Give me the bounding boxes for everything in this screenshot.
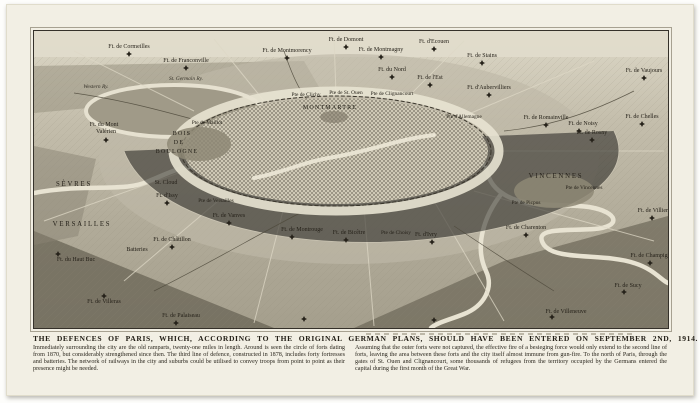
map-label: Ft. du Haut Buc <box>57 257 96 263</box>
map-label: Pte de Vincennes <box>565 185 602 191</box>
map-label: Valérien <box>96 129 116 135</box>
map-label: Ft. de Sucy <box>614 283 641 289</box>
map-label: Ft. de l'Est <box>417 75 443 81</box>
map-label: Batteries <box>126 247 148 253</box>
map-label: DE <box>174 140 184 146</box>
map-label: Pte de Clichy <box>291 92 320 98</box>
map-label: Ft. de Palaiseau <box>162 313 200 319</box>
map-label: Pte d'Allemagne <box>446 114 482 120</box>
map-label: Ft. d'Ivry <box>415 232 437 238</box>
map-label: Ft. d'Ecouen <box>419 39 449 45</box>
caption-left-column: Immediately surrounding the city are the… <box>33 345 345 373</box>
map-label: Ft. de Franconville <box>163 58 209 64</box>
map-label: Ft. de Cormeilles <box>108 44 150 50</box>
map-label: Pte de St. Ouen <box>329 90 363 96</box>
map-label: Ft. du Mont <box>90 122 119 128</box>
map-label: Pte de Picpus <box>511 200 540 206</box>
map-label: MONTMARTRE <box>303 105 357 111</box>
map-label: Pte de Maillot <box>192 120 223 126</box>
map-frame: Ft. de CormeillesFt. de FranconvilleFt. … <box>33 30 669 329</box>
map-label: Ft. de Villiers <box>638 208 668 214</box>
map-label: Ft. d'Issy <box>156 193 178 199</box>
map-label: Ft. de Villeneuve <box>545 309 586 315</box>
map-label: Ft. de Charenton <box>506 225 546 231</box>
map-label: Ft. de Champigny <box>630 253 668 259</box>
map-label: Ft. de Montmagny <box>359 47 404 53</box>
caption-title: THE DEFENCES OF PARIS, WHICH, ACCORDING … <box>33 334 667 343</box>
map-label: BOIS <box>173 131 191 137</box>
map-label: VINCENNES <box>529 173 584 180</box>
map-label: Ft. de Vanves <box>213 213 246 219</box>
map-label: Ft. de Châtillon <box>153 237 191 243</box>
montmartre-hill <box>320 111 348 123</box>
map-label: Pte de Choisy <box>381 230 411 236</box>
map-label: BOULOGNE <box>156 149 199 155</box>
map-label: St. Germain Ry. <box>169 76 203 82</box>
map-label: Ft. de Chelles <box>625 114 659 120</box>
map-label: Ft. de Romainville <box>524 115 569 121</box>
caption-right-column: Assuming that the outer forts were not c… <box>355 345 667 373</box>
map-label: Ft. de Montmorency <box>262 48 311 54</box>
map-label: Pte de Clignancourt <box>371 91 414 97</box>
map-label: Ft. du Nord <box>378 67 406 73</box>
map-label: Ft. de Noisy <box>568 121 598 127</box>
map-label: Ft. de Domont <box>329 37 364 43</box>
map-label: Ft. de Montrouge <box>281 227 323 233</box>
map-label: Ft. de Vaujours <box>626 68 663 74</box>
map-label: Ft. de Rosny <box>577 130 608 136</box>
book-page: Ft. de CormeillesFt. de FranconvilleFt. … <box>6 4 694 396</box>
map-label: Ft. de Stains <box>467 53 498 59</box>
map-svg: Ft. de CormeillesFt. de FranconvilleFt. … <box>34 31 668 328</box>
map-label: VERSAILLES <box>53 221 112 228</box>
map-label: St. Cloud <box>155 180 178 186</box>
map-label: Pte de Versailles <box>198 198 234 204</box>
map-label: SÈVRES <box>56 180 92 188</box>
map-label: Western Ry. <box>83 84 108 90</box>
map-label: Ft. de Bicêtre <box>333 230 366 236</box>
map-label: Ft. d'Aubervilliers <box>467 85 511 91</box>
map-label: Ft. de Villeras <box>87 299 121 305</box>
caption-columns: Immediately surrounding the city are the… <box>33 345 667 373</box>
